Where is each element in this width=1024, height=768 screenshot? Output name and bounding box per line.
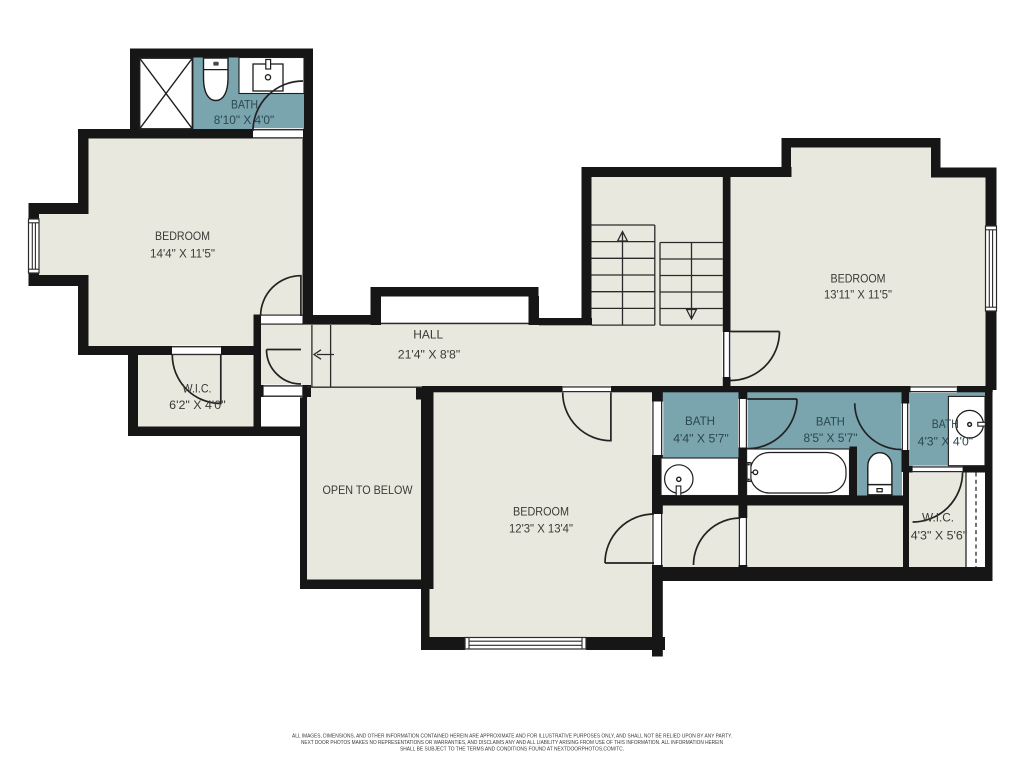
svg-text:BEDROOM: BEDROOM — [155, 229, 210, 243]
svg-text:W.I.C.: W.I.C. — [922, 511, 954, 525]
svg-text:13'11" X 11'5": 13'11" X 11'5" — [824, 288, 892, 302]
svg-text:BATH: BATH — [231, 97, 258, 111]
svg-text:4'4" X 5'7": 4'4" X 5'7" — [673, 432, 729, 446]
svg-text:21'4" X 8'8": 21'4" X 8'8" — [398, 348, 461, 362]
svg-text:SHALL BE SUBJECT TO THE TERMS: SHALL BE SUBJECT TO THE TERMS AND CONDIT… — [400, 747, 624, 753]
svg-text:6'2" X 4'0": 6'2" X 4'0" — [169, 398, 226, 412]
svg-text:ALL IMAGES, DIMENSIONS, AND OT: ALL IMAGES, DIMENSIONS, AND OTHER INFORM… — [292, 734, 732, 740]
svg-text:BEDROOM: BEDROOM — [513, 505, 569, 519]
svg-text:OPEN TO BELOW: OPEN TO BELOW — [323, 483, 414, 497]
svg-text:4'3" X 5'6": 4'3" X 5'6" — [911, 529, 968, 543]
svg-text:8'5" X 5'7": 8'5" X 5'7" — [804, 431, 858, 445]
svg-text:W.I.C.: W.I.C. — [183, 382, 212, 396]
svg-text:4'3" X 4'0": 4'3" X 4'0" — [918, 435, 974, 449]
svg-text:14'4" X 11'5": 14'4" X 11'5" — [150, 247, 215, 261]
svg-text:12'3" X 13'4": 12'3" X 13'4" — [509, 522, 573, 536]
svg-text:NEXT DOOR PHOTOS MAKES NO REPR: NEXT DOOR PHOTOS MAKES NO REPRESENTATION… — [301, 740, 723, 746]
svg-text:BATH: BATH — [932, 417, 959, 431]
svg-text:BATH: BATH — [816, 415, 845, 429]
svg-text:BATH: BATH — [685, 414, 715, 428]
svg-text:HALL: HALL — [413, 328, 443, 342]
svg-text:BEDROOM: BEDROOM — [831, 272, 886, 286]
svg-text:8'10" X 4'0": 8'10" X 4'0" — [214, 113, 275, 127]
